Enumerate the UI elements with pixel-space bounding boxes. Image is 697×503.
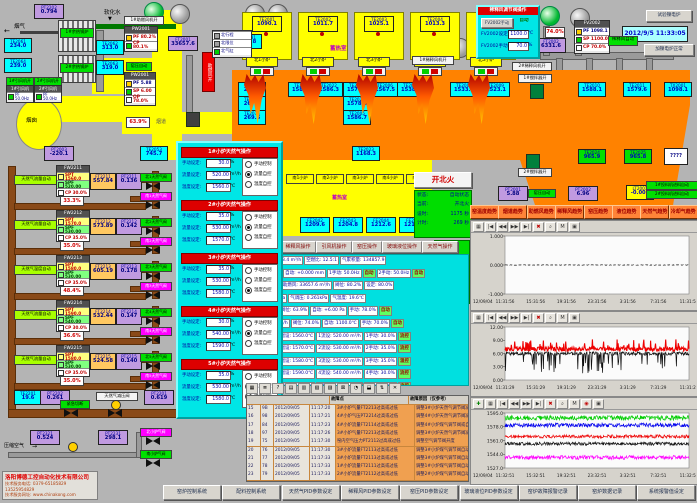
alarm-tool-icon[interactable]: ≣ [259, 383, 271, 394]
pressure-trend-chart: ▦|◀◀◀▶▶▶|✖⌕M▣12.009.006.003.000.0012/09/… [470, 311, 697, 397]
valve-icon[interactable] [146, 201, 160, 210]
south-regen-label: 蓄热室 [332, 196, 356, 204]
valve-icon[interactable] [146, 459, 160, 468]
instrument-value: 1098.1 [665, 88, 691, 93]
alarm-tool-icon[interactable]: ⬓ [363, 383, 375, 394]
motor-icon [526, 154, 540, 169]
alarm-tool-icon[interactable]: ▤ [285, 383, 297, 394]
radio-icon[interactable] [245, 340, 252, 347]
legend-text: 北限位 [221, 41, 234, 45]
valve-icon[interactable] [146, 182, 160, 191]
marker-dot [264, 32, 268, 36]
gas-auto-label[interactable]: 天然气流量自动 [14, 175, 58, 185]
chart-tool-icon[interactable]: |◀ [485, 222, 496, 232]
trend-button-6[interactable]: 液位趋势 [612, 205, 641, 219]
instrument-value: 0.142 [117, 224, 141, 229]
gas-auto-label[interactable]: 天然气流量自动 [14, 220, 58, 230]
param-cell: 阀位: 74.0% [291, 319, 321, 328]
chart-tool-icon[interactable]: |◀ [497, 399, 508, 409]
radio-row[interactable]: 温度自控 [243, 232, 277, 242]
legend-row: 北限位 [213, 39, 251, 47]
chart-toolbar: ✚▦|◀◀◀▶▶▶|✖⌕M◉▣ [471, 398, 697, 410]
company-site: 技术服务网址: www.chinakong.com [5, 492, 95, 498]
panel-row: PF 80.2% [125, 33, 157, 41]
fv2002-set-input[interactable]: 1100.0 [508, 30, 529, 39]
field-label: 流量设定: [182, 225, 208, 232]
ops-button-6[interactable]: 天然气操作 [422, 241, 458, 253]
pt-box: PT22110.136 [116, 173, 142, 190]
field-label: 流量设定: [182, 172, 208, 179]
instrument-te2005: TE20051586.7 [343, 110, 371, 125]
indicator-red-icon [487, 69, 494, 74]
port-indicator [362, 67, 386, 76]
field-label: 流量设定: [182, 384, 208, 391]
chart-tool-icon[interactable]: M [569, 399, 580, 409]
ft-box: FT2211557.84 [90, 173, 116, 190]
valve-icon[interactable] [146, 291, 160, 300]
field-input[interactable]: 540.00 [206, 330, 231, 339]
param-cell: 自动: +0.000 mm [283, 269, 326, 278]
param-cell: 1流设: 520.00 m³/h [316, 332, 363, 341]
chart-toolbar: ▦|◀◀◀▶▶▶|✖⌕M▣ [471, 312, 697, 324]
chart-tool-icon[interactable]: ✚ [473, 399, 484, 409]
instrument-value: 5.88 [499, 192, 527, 197]
svg-text:3.00: 3.00 [493, 365, 503, 371]
radio-row[interactable]: 手动控制 [243, 371, 277, 381]
instrument-value: 745.7 [141, 152, 167, 157]
chart-tool-icon[interactable]: ▶| [521, 222, 532, 232]
radio-row[interactable]: 流量自控 [243, 222, 277, 232]
compressed-air-label: 压缩空气 [4, 444, 32, 451]
south-valve-label: 南1天然气阀 [140, 192, 172, 201]
motor-icon [186, 112, 200, 127]
instrument-value: 1212.6 [367, 223, 395, 228]
nav-button-3[interactable]: 天然气PID参数设定 [282, 485, 340, 500]
furnace-normal-button[interactable]: 加镍电炉正常 [644, 44, 694, 56]
gas-auto-label[interactable]: 天然气温度自动 [14, 265, 58, 275]
alarm-header-cell: 故障原因（仅参考） [409, 396, 469, 405]
valve-icon[interactable] [146, 272, 160, 281]
reducer-valve-icon[interactable] [108, 409, 122, 418]
panel-text: PF 80.2% [133, 36, 156, 40]
valve-pct: 35.0% [60, 376, 84, 386]
field-input[interactable]: 30.0 [206, 159, 231, 168]
dilution-auto-label: 稀释风自动 [608, 36, 638, 46]
instrument-value: 234.0 [5, 44, 31, 49]
trend-button-1[interactable]: 窑温度趋势 [470, 205, 499, 219]
trend-button-4[interactable]: 稀释风趋势 [555, 205, 584, 219]
field-unit: ℃ [230, 396, 242, 403]
indicator-green-icon [478, 69, 485, 74]
port-indicator [474, 67, 498, 76]
valve-icon[interactable] [146, 381, 160, 390]
status-square-icon [58, 309, 64, 315]
field-label: 手动设定: [182, 372, 208, 379]
gas-auto-label[interactable]: 天然气流量自动 [14, 355, 58, 365]
instrument-value: 1209.6 [301, 223, 329, 228]
panel-text: SP 1100.0 [583, 38, 608, 42]
status-square-icon [58, 190, 64, 196]
radio-row[interactable]: 温度自控 [243, 338, 277, 348]
flue-damper-pct: 63.9% [126, 117, 150, 128]
valve-icon[interactable] [146, 336, 160, 345]
chart-tool-icon[interactable]: ▣ [569, 313, 580, 323]
regen-te-box: TE20041013.3 [420, 16, 450, 32]
svg-text:-1.000: -1.000 [488, 292, 503, 298]
alarm-cell: 2012/09/05 [274, 471, 310, 480]
dilution-nozzle [556, 58, 563, 72]
chart-tool-icon[interactable]: ⌕ [557, 399, 568, 409]
chart-tool-icon[interactable]: ▣ [569, 222, 580, 232]
radio-icon[interactable] [245, 171, 252, 178]
unit: % [528, 43, 536, 50]
instrument-value: 1090.1 [253, 22, 281, 27]
param-cell: 气累积量: 134857.9 [340, 256, 386, 265]
radio-label: 手动控制 [254, 214, 272, 220]
south-fe-box: FE20441212.6 [366, 217, 396, 233]
alarm-tool-icon[interactable]: ⇅ [376, 383, 388, 394]
stirrer1-label: 1#搅拌器开 [518, 74, 552, 83]
panel-row: SPF 530.00 [57, 225, 89, 233]
chart-tool-icon[interactable]: M [557, 222, 568, 232]
field-input[interactable]: 520.00 [206, 171, 231, 180]
panel-text: SPF 530.00 [65, 361, 88, 369]
valve-icon[interactable] [146, 362, 160, 371]
south-valve-label: 南4天然气阀 [140, 327, 172, 336]
radio-label: 温度自控 [254, 340, 272, 346]
alarm-cell: 79 [261, 471, 274, 480]
svg-text:1.000: 1.000 [490, 234, 503, 240]
instrument-value: 532.44 [91, 314, 115, 319]
radio-row[interactable]: 流量自控 [243, 169, 277, 179]
emergency-valve-icon[interactable] [64, 409, 78, 418]
marker-dot [376, 32, 380, 36]
radio-icon[interactable] [245, 373, 252, 380]
north-port-label: 北2小炉 [302, 57, 334, 67]
chart-tool-icon[interactable]: |◀ [485, 313, 496, 323]
radio-icon[interactable] [245, 234, 252, 241]
svg-text:12.00: 12.00 [490, 325, 503, 331]
radio-label: 手动控制 [254, 267, 272, 273]
indicator-green-icon [254, 69, 261, 74]
param-cell: 自动: 1100.0℃ [322, 319, 359, 328]
radio-label: 手动控制 [254, 373, 272, 379]
section-title: 5#小炉天然气操作 [181, 359, 278, 370]
alarm-tool-icon[interactable]: ▨ [324, 383, 336, 394]
chart-tool-icon[interactable]: M [557, 313, 568, 323]
svg-text:0.00: 0.00 [493, 378, 503, 384]
status-row: 状态:自动状态 [415, 191, 471, 200]
combustion-air-on-bar: 助燃风开 [202, 52, 215, 92]
instrument-value: 269.6 [239, 116, 265, 121]
instrument-pt2202: PT22020.794 [34, 4, 64, 19]
chart-tool-icon[interactable]: ▶▶ [509, 222, 520, 232]
chart-tool-icon[interactable]: ▦ [485, 399, 496, 409]
fw-panel: FW2214SPT 1590.0SPF 540.00CP 30.0% [56, 300, 90, 332]
test-furnace-button[interactable]: 试验镍电炉 [646, 10, 692, 22]
instrument-value: 298.1 [99, 436, 127, 441]
field-input[interactable]: 530.00 [206, 224, 231, 233]
ops-button-2[interactable]: 稀释风操作 [280, 241, 316, 253]
fw-panel: FW2211SPT 1560.0SPF 520.00CP 30.0% [56, 165, 90, 197]
instrument-pt2001: PT20015.88 [498, 186, 528, 201]
chart-tool-icon[interactable]: ▦ [473, 222, 484, 232]
param-cell: 自动 [391, 319, 404, 328]
field-label: 手动设定: [182, 266, 208, 273]
field-input[interactable]: 1570.0 [206, 236, 231, 245]
radio-icon[interactable] [245, 287, 252, 294]
fire-direction-button[interactable]: 开北火 [414, 172, 472, 188]
status-square-icon [58, 272, 64, 278]
trend-button-5[interactable]: 窑压趋势 [584, 205, 613, 219]
status-square-icon [58, 317, 64, 323]
trend-button-7[interactable]: 天然气趋势 [640, 205, 669, 219]
field-input[interactable]: 1560.0 [206, 183, 231, 192]
field-input[interactable]: 1590.0 [206, 342, 231, 351]
param-cell: 1手动: 30.0% [364, 332, 397, 341]
instrument-value: 1168.3 [353, 152, 379, 157]
field-unit: % [230, 372, 242, 379]
chart-tool-icon[interactable]: ▶| [521, 313, 532, 323]
radio-icon[interactable] [245, 214, 252, 221]
chart-tool-icon[interactable]: ▶| [533, 399, 544, 409]
boiler-label: 2#余热锅炉 [60, 63, 94, 73]
unknown-value-box: ???? [664, 148, 688, 165]
chart-tool-icon[interactable]: ⌕ [545, 313, 556, 323]
radio-row[interactable]: 手动控制 [243, 265, 277, 275]
panel-text: CP 70.0% [583, 46, 606, 50]
chart-tool-icon[interactable]: ✖ [545, 399, 556, 409]
pipe [186, 55, 193, 117]
nav-button-2[interactable]: 配料控制系统 [222, 485, 280, 500]
param-cell: 阀位: 80.2% [333, 281, 363, 290]
field-input[interactable]: 35.0 [206, 371, 231, 380]
radio-row[interactable]: 流量自控 [243, 275, 277, 285]
param-cell: 3手动: 35.0% [364, 357, 397, 366]
alarm-row[interactable]: 23792012/09/0511:17:332#小炉流量FT2112过高或过低调… [247, 471, 469, 480]
panel-text: PF 1098.1 [583, 30, 608, 34]
panel-text: SPF 520.00 [65, 181, 88, 189]
field-unit: ℃ [230, 343, 242, 350]
fv2002-manual-button[interactable]: FV2002手动 [481, 18, 513, 28]
chart-tool-icon[interactable]: ◀◀ [497, 222, 508, 232]
chart-tool-icon[interactable]: ◀◀ [509, 399, 520, 409]
instrument-pt2231: PT2231298.1 [98, 430, 128, 445]
fv2002-auto-button[interactable]: 自动 [516, 18, 532, 26]
field-input[interactable]: 30.0 [206, 318, 231, 327]
param-cell: 3流设: 530.00 m³/h [316, 357, 363, 366]
radio-row[interactable]: 温度自控 [243, 179, 277, 189]
firing-status-panel: 状态:自动状态当前:开北火设时:1175 秒计时:269 秒 [414, 190, 472, 238]
radio-row[interactable]: 手动控制 [243, 212, 277, 222]
instrument-value: 0.147 [117, 314, 141, 319]
fluegas-arrow-icon: ← [4, 28, 12, 36]
field-input[interactable]: 1580.0 [206, 289, 231, 298]
status-square-icon [576, 37, 582, 43]
param-cell: 1手动: 50.0Hz [327, 269, 362, 278]
indicator-green-icon [366, 69, 373, 74]
nav-button-9[interactable]: 系统报警值设定 [637, 485, 695, 500]
param-cell: 温控 [398, 357, 411, 366]
feeder-auto-label: 1#投料机进料自动 [646, 181, 697, 190]
param-cell: 空燃比: 12.5:1 [304, 256, 339, 265]
south-port-label: 南4小炉 [376, 174, 404, 184]
radio-row[interactable]: 手动控制 [243, 318, 277, 328]
radio-icon[interactable] [245, 181, 252, 188]
param-cell: 自动 [412, 269, 425, 278]
gas-auto-label[interactable]: 天然气流量自动 [14, 310, 58, 320]
status-square-icon [126, 97, 132, 103]
blower-on-label: 1#助燃风机开 [124, 16, 164, 25]
ops-button-3[interactable]: 引风机操作 [316, 241, 352, 253]
nav-button-7[interactable]: 窑炉故障报警记录 [519, 485, 577, 500]
status-square-icon [58, 354, 64, 360]
chart-tool-icon[interactable]: ▣ [593, 399, 604, 409]
chart-tool-icon[interactable]: ▦ [473, 313, 484, 323]
field-label: 流量设定: [182, 278, 208, 285]
param-cell: 阀位: 63.9% [279, 306, 309, 315]
indicator-green-icon [310, 69, 317, 74]
panel-text: CP 30.0% [65, 326, 87, 330]
boiler-label: 1#余热锅炉 [60, 28, 94, 38]
valve-pct: 36.6% [60, 331, 84, 341]
instrument-te2062: TE2062313.0 [96, 40, 124, 55]
alarm-cell: 调整2#小炉煤气调节阀自动阀门 [415, 471, 469, 480]
chart-tool-icon[interactable]: ✖ [533, 222, 544, 232]
param-cell: 流控 [398, 344, 411, 353]
radio-icon[interactable] [245, 320, 252, 327]
ops-button-4[interactable]: 窑压操作 [352, 241, 382, 253]
chart-tool-icon[interactable]: ◀◀ [497, 313, 508, 323]
status-square-icon [58, 174, 64, 180]
valve-icon[interactable] [146, 227, 160, 236]
svg-text:23:31:29: 23:31:29 [588, 385, 607, 390]
radio-row[interactable]: 流量自控 [243, 328, 277, 338]
alarm-tool-icon[interactable]: ▥ [298, 383, 310, 394]
alarm-tool-icon[interactable]: ▦ [246, 383, 258, 394]
instrument-value: 573.89 [91, 224, 115, 229]
status-row: 计时:269 秒 [415, 219, 471, 228]
status-square-icon [126, 43, 132, 49]
fan-icon [540, 6, 560, 26]
ft-box: FT2215524.58 [90, 353, 116, 370]
instrument-value: 1204.8 [334, 223, 362, 228]
svg-text:19:31:29: 19:31:29 [557, 385, 576, 390]
radio-icon[interactable] [245, 161, 252, 168]
radio-group: 手动控制流量自控温度自控 [242, 211, 278, 249]
svg-text:9.00: 9.00 [493, 338, 503, 344]
regen-te-box: TE20011090.1 [252, 16, 282, 32]
instrument-te2053: TE2053745.7 [140, 146, 168, 161]
port-indicator [250, 67, 274, 76]
panel-row: PF 50.0Hz [7, 92, 33, 100]
nav-button-4[interactable]: 稀释风PID参数设定 [341, 485, 399, 500]
radio-icon[interactable] [245, 224, 252, 231]
valve-pct: 48.4% [60, 286, 84, 296]
panel-text: SP 6.00 [133, 90, 152, 94]
chart-tool-icon[interactable]: ▶▶ [509, 313, 520, 323]
alarm-tool-icon[interactable]: ⊠ [337, 383, 349, 394]
nav-button-6[interactable]: 玻璃液位PID参数设定 [460, 485, 518, 500]
chart-tool-icon[interactable]: ✖ [533, 313, 544, 323]
panel-text: SPF 530.00 [65, 226, 88, 234]
field-label: 流量设定: [182, 331, 208, 338]
field-unit: % [230, 266, 242, 273]
fluegas-label: 烟气 [14, 24, 34, 31]
status-label: 状态: [417, 191, 428, 200]
nav-button-5[interactable]: 窑压PID参数设定 [400, 485, 458, 500]
radio-row[interactable]: 手动控制 [243, 159, 277, 169]
fv2002-man-label: FV2002手动: [481, 43, 507, 50]
alarm-table: 故障点故障原因（仅参考）159B2012/09/0511:17:203#小炉气量… [246, 395, 469, 482]
trend-button-8[interactable]: 冷却气趋势 [669, 205, 697, 219]
trend-button-3[interactable]: 助燃风趋势 [527, 205, 556, 219]
alarm-tool-icon[interactable]: ? [272, 383, 284, 394]
alarm-tool-icon[interactable]: ✕ [389, 383, 401, 394]
svg-text:1595.0: 1595.0 [487, 411, 503, 417]
north-port-label: 北3小炉 [358, 57, 390, 67]
radio-icon[interactable] [245, 267, 252, 274]
svg-text:1578.0: 1578.0 [487, 425, 503, 431]
field-label: 手动设定: [182, 160, 208, 167]
panel-text: CP 80.1% [133, 42, 156, 51]
valve-icon[interactable] [146, 317, 160, 326]
field-input[interactable]: 530.00 [206, 383, 231, 392]
field-label: 温度设定: [182, 237, 208, 244]
ops-button-5[interactable]: 玻璃液位操作 [382, 241, 422, 253]
alarm-header-cell: 故障点 [330, 396, 409, 405]
panel-text: CP 35.0% [65, 281, 87, 285]
radio-icon[interactable] [245, 330, 252, 337]
north-port-label: 北1小炉 [246, 57, 278, 67]
alarm-tool-icon[interactable]: ▧ [311, 383, 323, 394]
instrument-te2024: TE2024965.9 [578, 149, 606, 164]
chart-tool-icon[interactable]: ◉ [581, 399, 592, 409]
alarm-tool-icon[interactable]: ◔ [350, 383, 362, 394]
param-cell: 2手动: 50.0Hz [377, 269, 412, 278]
nav-button-8[interactable]: 窑炉数据记录 [578, 485, 636, 500]
field-unit: ℃ [230, 237, 242, 244]
param-cell: 手动: 78.0% [348, 306, 378, 315]
chart-tool-icon[interactable]: ▶▶ [521, 399, 532, 409]
trend-button-2[interactable]: 烟道趋势 [498, 205, 527, 219]
field-input[interactable]: 1580.0 [206, 395, 231, 404]
panel-row: CP 70.0% [575, 43, 609, 51]
nav-button-1[interactable]: 窑炉控制系统 [163, 485, 221, 500]
south-port-label: 南2小炉 [316, 174, 344, 184]
dilution-nozzle [646, 58, 653, 72]
radio-row[interactable]: 温度自控 [243, 285, 277, 295]
fv2002-man-input[interactable]: 70.0 [508, 42, 529, 51]
svg-text:1544.0: 1544.0 [487, 452, 503, 458]
field-input[interactable]: 35.0 [206, 265, 231, 274]
field-input[interactable]: 530.00 [206, 277, 231, 286]
valve-icon[interactable] [146, 246, 160, 255]
north-valve-label: 北1天然气阀 [140, 173, 172, 182]
panel-row: SPF 530.00 [57, 360, 89, 368]
softwater-arrow-icon: ▼ [108, 17, 116, 24]
status-square-icon [58, 280, 64, 286]
radio-icon[interactable] [245, 277, 252, 284]
valve-icon[interactable] [146, 437, 160, 446]
chart-tool-icon[interactable]: ⌕ [545, 222, 556, 232]
legend-row: 北气缸 [213, 47, 251, 55]
field-input[interactable]: 35.0 [206, 212, 231, 221]
panel-text: PF 5.88 [133, 82, 152, 86]
regen-te-box: TE20021011.7 [308, 16, 338, 32]
legend-square-icon [214, 49, 220, 55]
fan-icon [170, 4, 190, 24]
